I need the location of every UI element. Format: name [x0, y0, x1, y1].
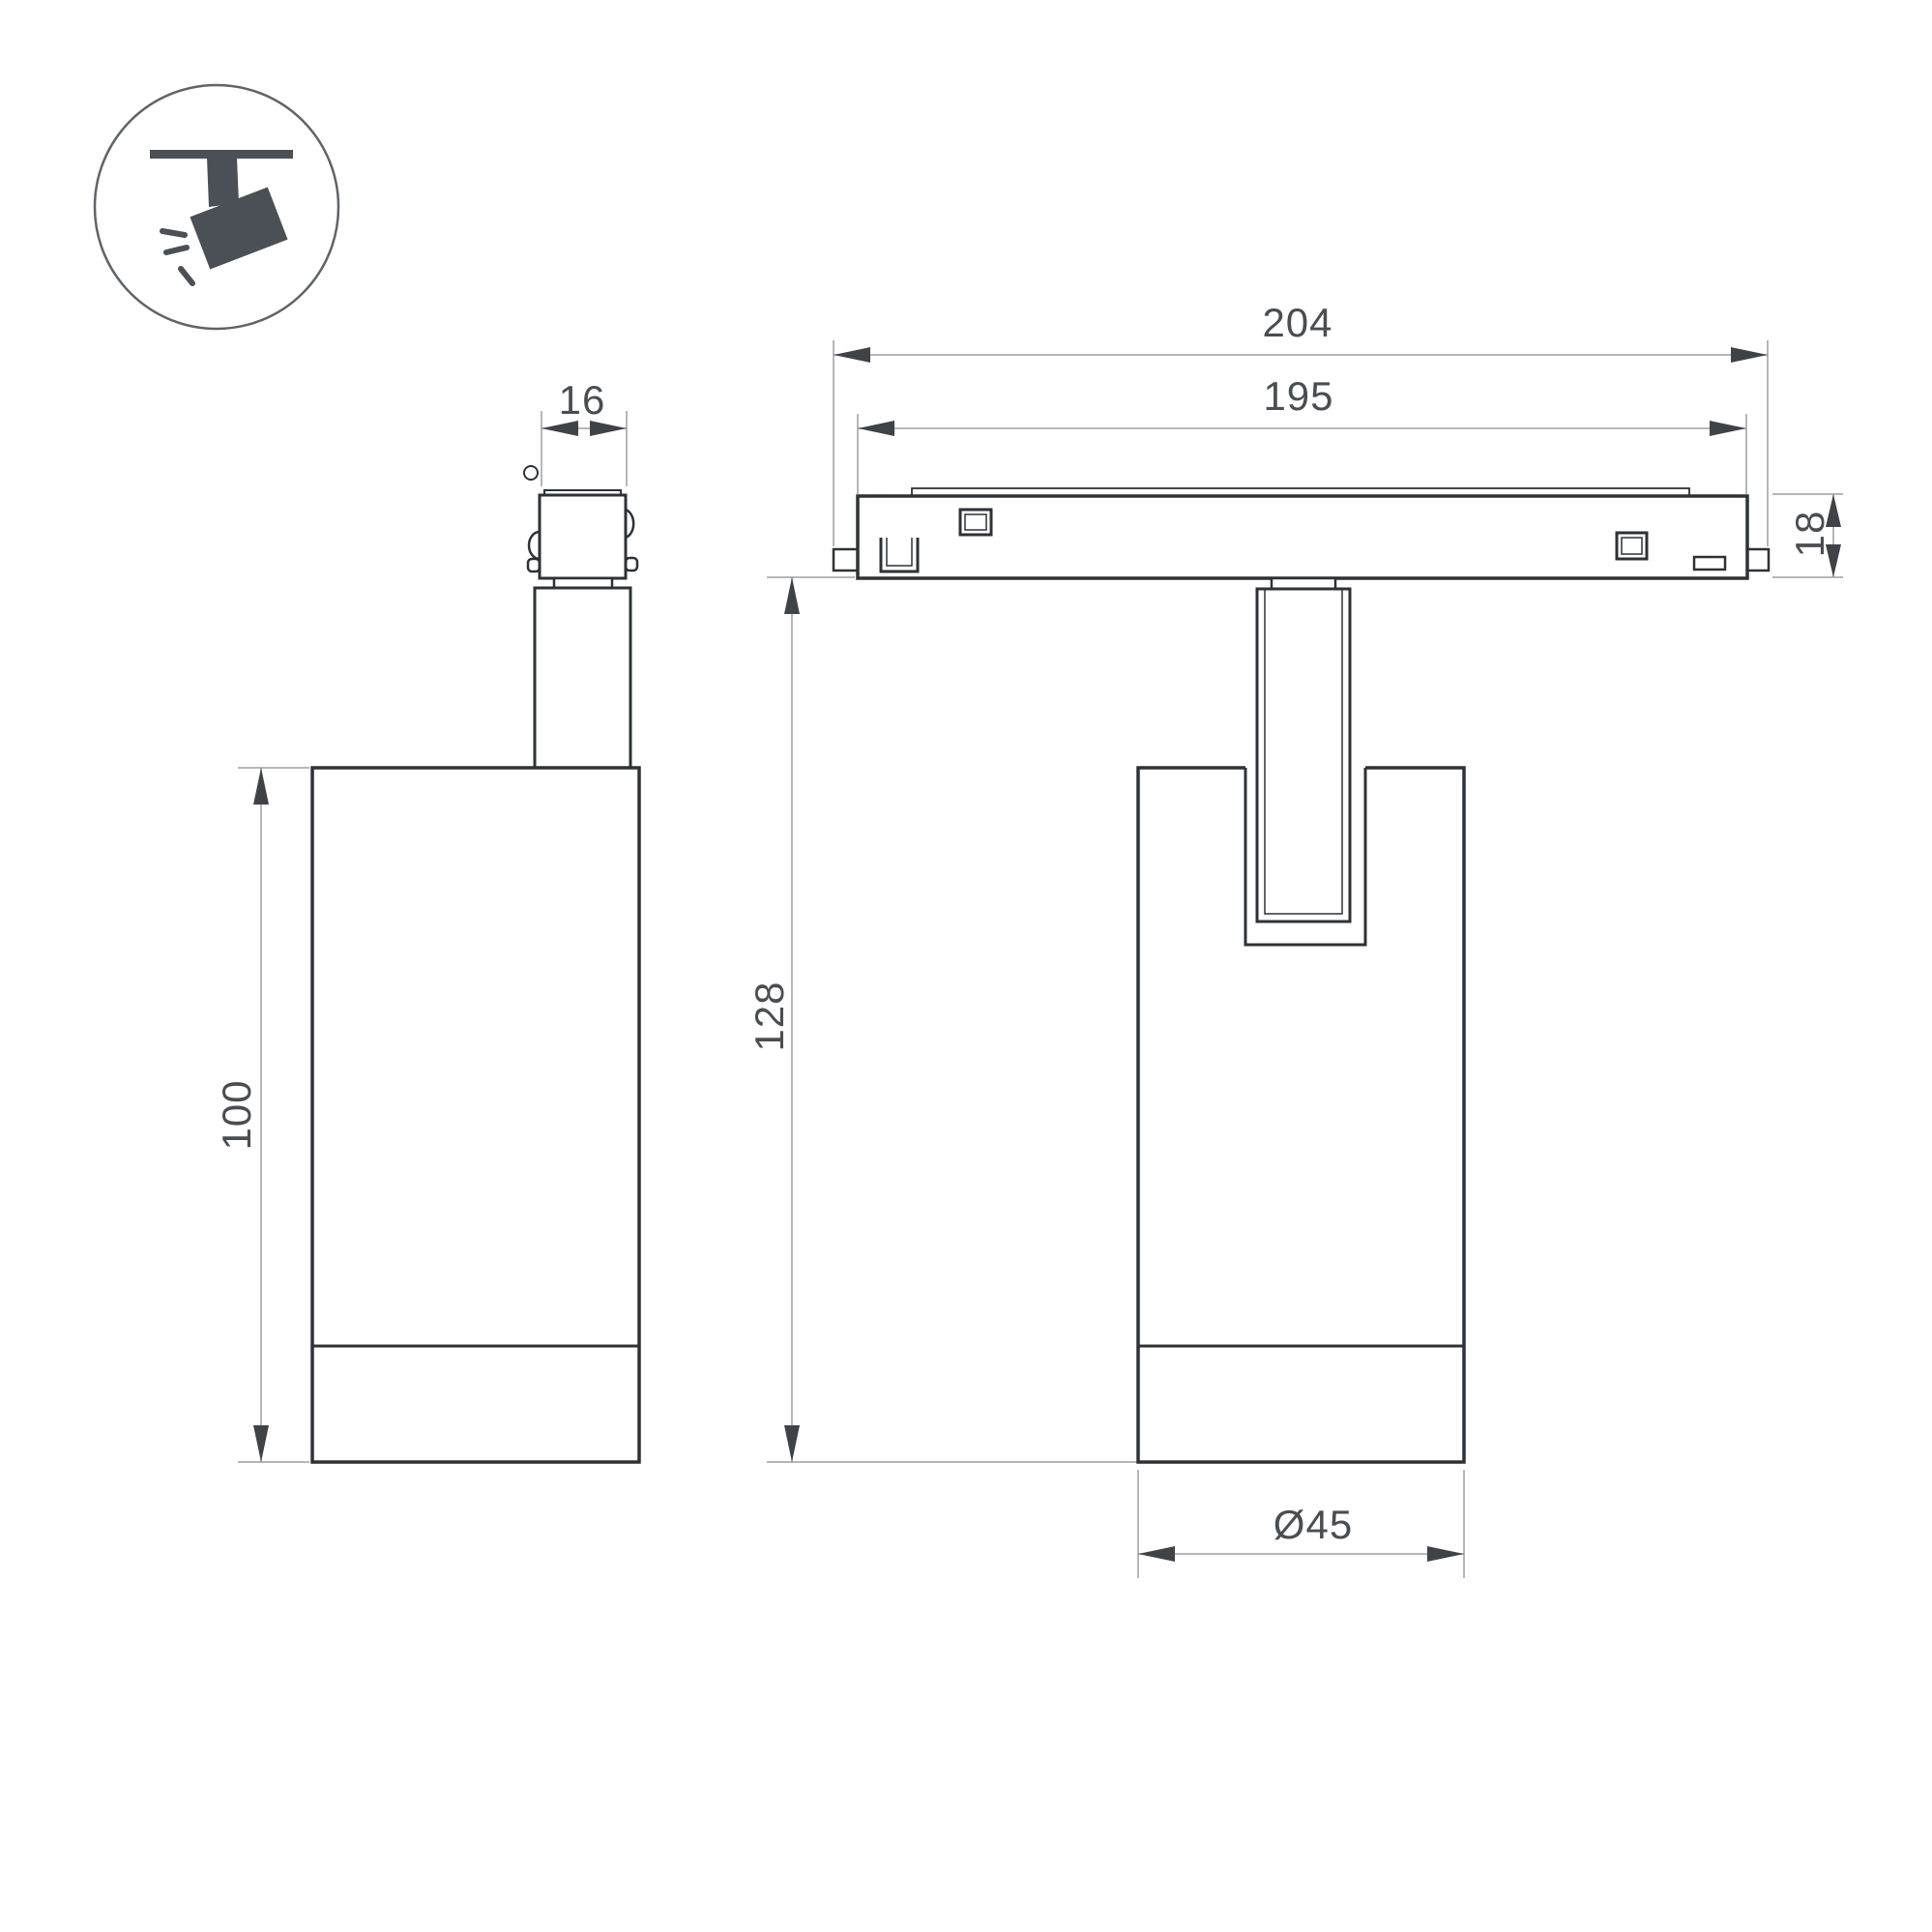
- dim-overall-height: 128: [746, 577, 1220, 1462]
- adapter-hook-left: [528, 559, 540, 571]
- track-light-icon: [95, 85, 338, 329]
- arrow-right-icon: [1731, 347, 1768, 363]
- arrow-left-icon: [858, 421, 894, 436]
- dim-label-track-length: 204: [1262, 300, 1332, 345]
- front-view: [834, 488, 1769, 1462]
- dim-label-body-height: 100: [214, 1079, 259, 1150]
- arrow-down-icon: [784, 1425, 800, 1462]
- arrow-right-icon: [1427, 1546, 1464, 1562]
- dim-body-diameter: Ø45: [1138, 1470, 1464, 1578]
- arrow-left-icon: [542, 421, 578, 436]
- stem-front: [1257, 589, 1350, 922]
- arrow-up-icon: [253, 768, 269, 805]
- dimension-drawing-canvas: 204 195 18: [0, 0, 1932, 1932]
- arrow-left-icon: [834, 347, 870, 363]
- track-end-tab-left: [834, 549, 858, 571]
- dim-label-body-diameter: Ø45: [1273, 1502, 1353, 1547]
- track-slot: [1694, 557, 1725, 570]
- dim-label-adapter-width: 16: [559, 377, 606, 423]
- dim-body-height: 100: [214, 768, 309, 1462]
- adapter-ear-left: [529, 532, 540, 559]
- arrow-right-icon: [1710, 421, 1746, 436]
- track-adapter: [540, 495, 626, 578]
- dim-track-inner-length: 195: [858, 373, 1746, 494]
- stem: [535, 588, 630, 769]
- arrow-right-icon: [590, 421, 627, 436]
- adapter-hook-right: [626, 558, 637, 571]
- dim-adapter-width: 16: [542, 377, 627, 486]
- stem-collar: [1272, 578, 1335, 589]
- icon-ceiling-track: [150, 150, 293, 159]
- adapter-spring-icon: [524, 466, 538, 480]
- dim-label-track-height: 18: [1787, 511, 1832, 558]
- track-end-tab-right: [1747, 549, 1769, 571]
- arrow-down-icon: [253, 1425, 269, 1462]
- technical-drawing: 204 195 18: [0, 0, 1932, 1932]
- dim-label-overall-height: 128: [746, 981, 792, 1051]
- icon-stem: [207, 158, 239, 207]
- dim-label-track-inner-length: 195: [1263, 373, 1333, 419]
- side-view: [312, 466, 639, 1462]
- lamp-body: [312, 768, 639, 1462]
- arrow-up-icon: [784, 577, 800, 614]
- dim-track-height: 18: [1772, 494, 1843, 577]
- arrow-left-icon: [1138, 1546, 1175, 1562]
